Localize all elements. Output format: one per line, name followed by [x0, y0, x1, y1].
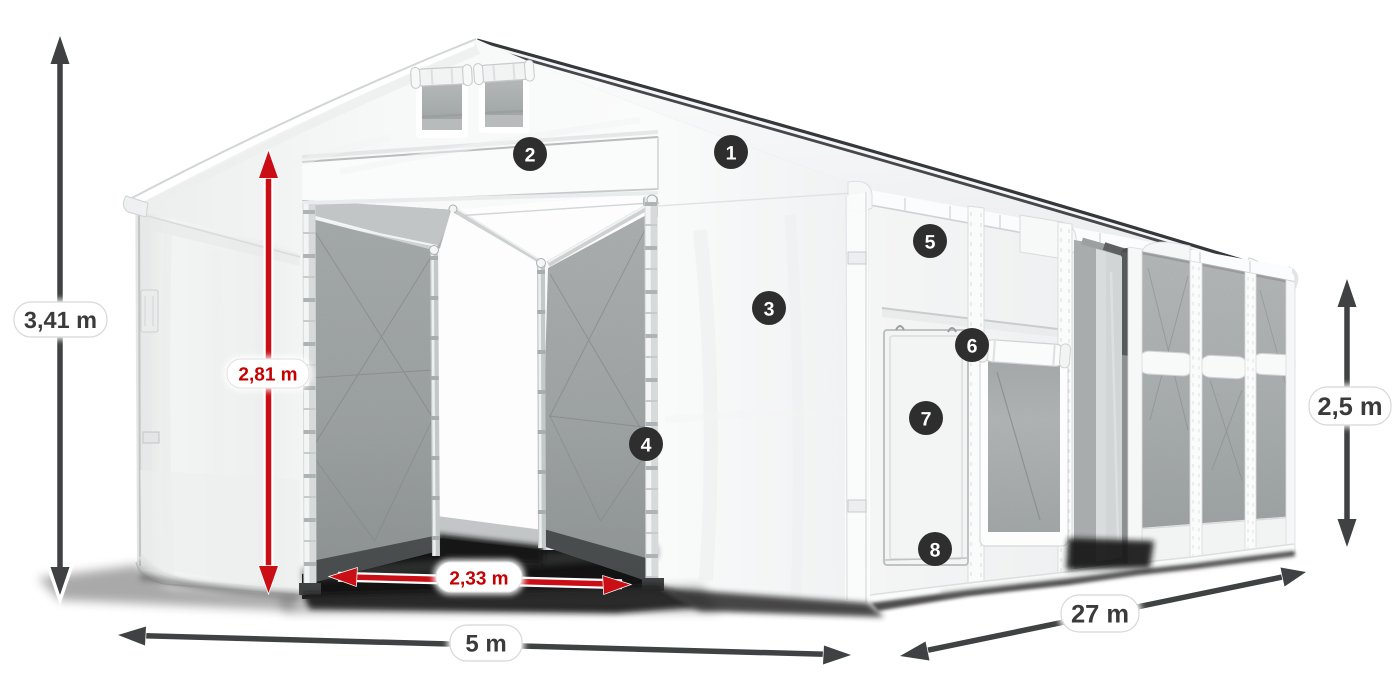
svg-text:27 m: 27 m	[1071, 601, 1129, 629]
svg-text:8: 8	[930, 540, 941, 562]
svg-text:7: 7	[921, 409, 932, 431]
svg-text:4: 4	[641, 435, 652, 457]
svg-text:3,41 m: 3,41 m	[24, 307, 97, 333]
svg-text:2,33 m: 2,33 m	[449, 569, 508, 590]
svg-text:5: 5	[925, 232, 936, 254]
svg-text:1: 1	[726, 143, 737, 165]
svg-text:2,5 m: 2,5 m	[1317, 393, 1382, 421]
svg-text:2: 2	[525, 145, 536, 167]
svg-text:5 m: 5 m	[465, 631, 506, 658]
svg-text:6: 6	[967, 336, 978, 358]
svg-text:2,81 m: 2,81 m	[238, 365, 297, 386]
svg-text:3: 3	[764, 299, 775, 321]
